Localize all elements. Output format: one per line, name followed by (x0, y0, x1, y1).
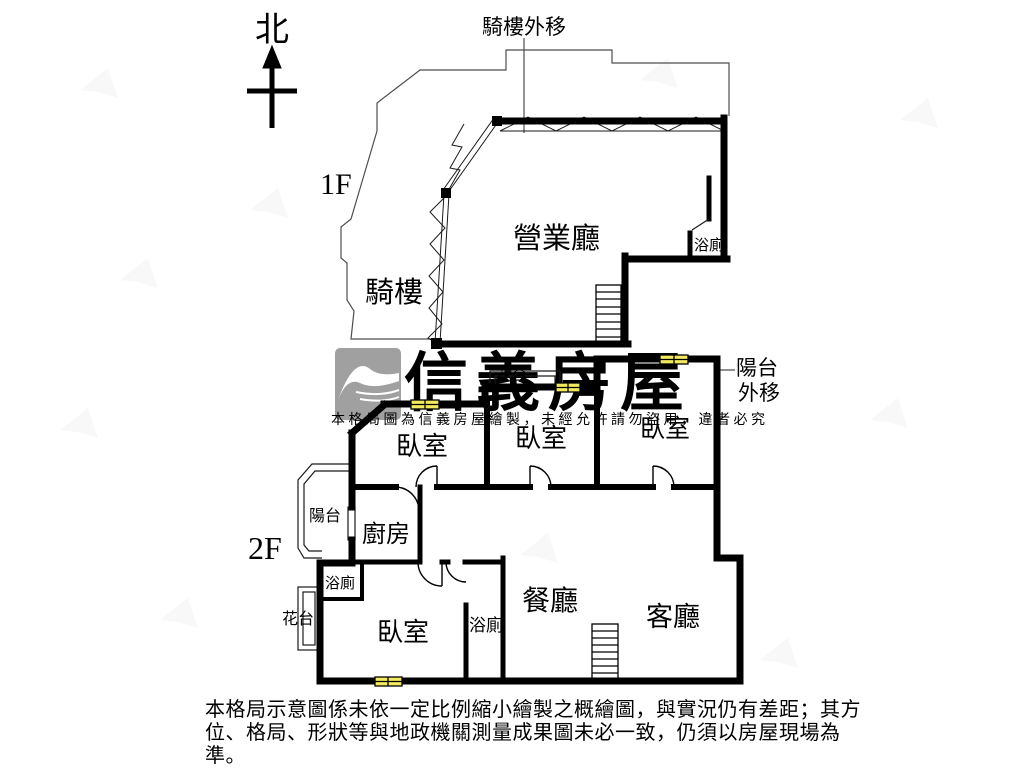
floor1-label: 1F (320, 168, 352, 201)
room-label-flower-top: 花台 (497, 367, 527, 384)
kitchen-door (395, 487, 419, 511)
property-boundary (341, 38, 735, 370)
room-label-bath-1f: 浴廁 (694, 236, 724, 254)
bedroom2-door (530, 466, 551, 487)
bath-center-door (446, 562, 466, 582)
room-label-bedroom1: 臥室 (396, 432, 448, 461)
annotation-arcade-offset: 騎樓外移 (482, 15, 566, 39)
room-label-dining: 餐廳 (522, 585, 578, 617)
room-label-bath-center: 浴廁 (469, 615, 503, 635)
disclaimer-line1: 本格局示意圖係未依一定比例縮小繪製之概繪圖，與實況仍有差距；其方 (205, 699, 865, 722)
room-label-flower-left: 花台 (282, 610, 314, 628)
room-label-bedroom4: 臥室 (377, 618, 429, 647)
kitchen-window (348, 507, 355, 540)
annotation-balcony-offset-2: 外移 (738, 381, 780, 405)
floor1-stairs (596, 285, 621, 344)
room-label-hall: 營業廳 (513, 222, 600, 255)
bedroom3-door (653, 466, 674, 487)
window-top-middle (556, 383, 580, 392)
room-label-bedroom2: 臥室 (515, 424, 567, 453)
north-arrow-icon (247, 46, 297, 128)
bedroom4-door (418, 562, 442, 586)
annotation-balcony-offset-1: 陽台 (736, 356, 778, 380)
room-label-living: 客廳 (646, 602, 700, 632)
room-label-kitchen: 廚房 (362, 521, 410, 548)
disclaimer-line2: 位、格局、形狀等與地政機關測量成果圖未必一致，仍須以房屋現場為準。 (205, 722, 865, 768)
bedroom1-door (416, 466, 437, 487)
floor1-bath-door-leaf (692, 219, 709, 230)
floorplan-page: 信義房屋 本格局圖為信義房屋繪製，未經允許請勿盜用，違者必究 (0, 0, 1024, 768)
room-label-bath-upper: 浴廁 (325, 574, 355, 592)
floorplan-canvas: 信義房屋 本格局圖為信義房屋繪製，未經允許請勿盜用，違者必究 (0, 0, 1024, 768)
north-label: 北 (255, 12, 289, 49)
window-bottom (375, 677, 402, 686)
room-label-bedroom3: 臥室 (640, 415, 690, 443)
disclaimer-text: 本格局示意圖係未依一定比例縮小繪製之概繪圖，與實況仍有差距；其方 位、格局、形狀… (205, 699, 865, 768)
floor2-stairs (592, 624, 618, 681)
window-top-right (660, 355, 688, 364)
window-top-left (411, 400, 439, 409)
room-label-arcade: 騎樓 (365, 276, 423, 309)
floor2-label: 2F (248, 530, 282, 566)
room-label-balcony-2f: 陽台 (309, 507, 341, 525)
